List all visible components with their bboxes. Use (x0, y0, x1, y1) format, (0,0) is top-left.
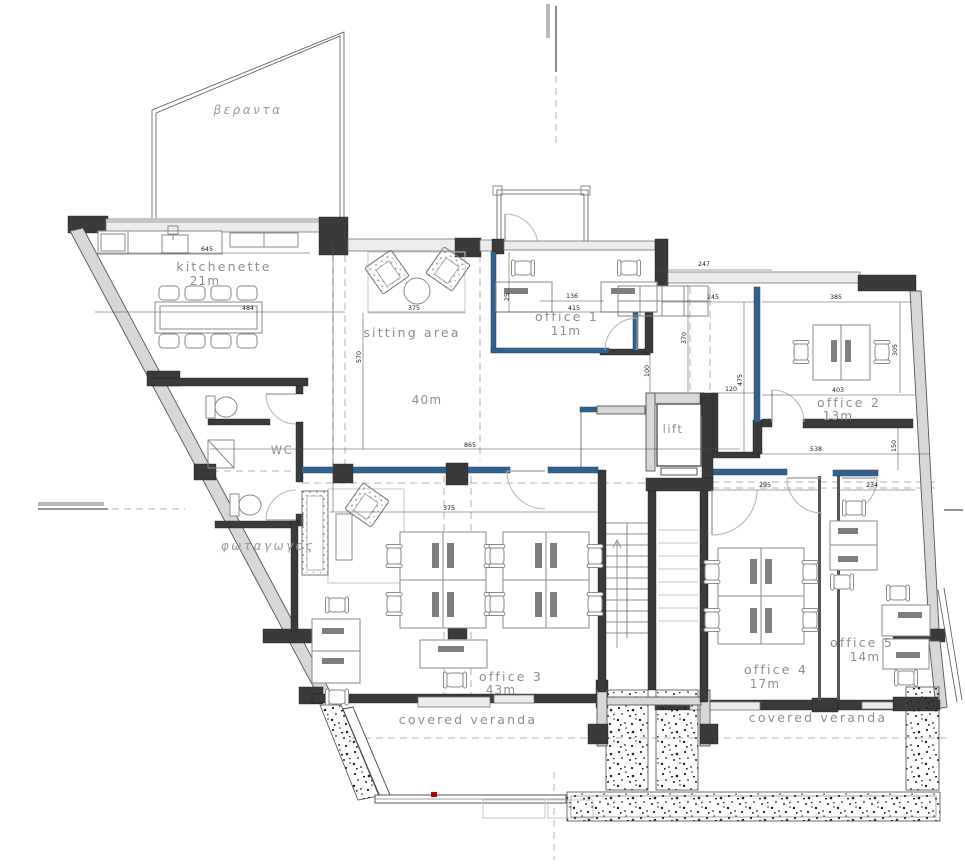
dim-16: 305 (892, 344, 899, 356)
label-covered-veranda-right: covered veranda (749, 710, 887, 725)
label-office-3: office 3 (479, 669, 543, 684)
label-kitchenette: kitchenette (176, 259, 271, 274)
red-marker (431, 792, 437, 797)
office-2-furniture (793, 325, 890, 380)
dim-5: 25 (504, 293, 511, 301)
dim-6: 865 (464, 442, 476, 449)
label-office-3-area: 43m (486, 683, 517, 697)
label-veranda: βεραντα (212, 103, 282, 117)
label-office-4-area: 17m (750, 677, 781, 691)
sitting-area-furniture (365, 247, 471, 313)
dim-2: 375 (408, 305, 420, 312)
label-office-5: office 5 (830, 635, 894, 650)
dim-17: 538 (810, 446, 822, 453)
dim-12: 100 (644, 365, 651, 377)
label-covered-veranda-left: covered veranda (399, 712, 537, 727)
label-main-area: 40m (412, 393, 443, 407)
balcony-outline (493, 186, 590, 247)
dim-21: 234 (866, 482, 878, 489)
label-office-1-area: 11m (551, 324, 582, 338)
label-office-4: office 4 (744, 662, 808, 677)
dim-18: 150 (891, 440, 898, 452)
lift-shaft (646, 393, 713, 491)
label-office-5-area: 14m (850, 650, 881, 664)
dim-7: 570 (356, 351, 363, 363)
dim-4: 136 (566, 293, 578, 300)
section-marks (38, 4, 963, 860)
label-office-2: office 2 (817, 395, 881, 410)
floor-plan-page: 6454843754151362586557024724538537010047… (0, 0, 965, 865)
dim-20: 295 (759, 482, 771, 489)
dim-11: 370 (681, 332, 688, 344)
dim-10: 385 (830, 294, 842, 301)
office-3-furniture (302, 483, 603, 705)
label-wc: WC (271, 443, 293, 457)
dim-9: 245 (707, 294, 719, 301)
label-kitchenette-area: 21m (190, 274, 221, 288)
label-light-well: φωταγωγος (221, 539, 315, 553)
dim-0: 645 (201, 246, 213, 253)
veranda-outline (152, 32, 344, 218)
dim-15: 403 (832, 387, 844, 394)
label-lift: lift (663, 422, 684, 436)
label-office-2-area: 13m (823, 409, 854, 423)
dim-19: 375 (443, 505, 455, 512)
dim-14: 120 (725, 386, 737, 393)
label-office-1: office 1 (535, 309, 599, 324)
floor-plan-drawing: 6454843754151362586557024724538537010047… (0, 0, 965, 865)
dim-8: 247 (698, 261, 710, 268)
office-4-furniture (704, 548, 818, 644)
dim-1: 484 (242, 305, 254, 312)
label-sitting-area: sitting area (363, 325, 460, 340)
dim-13: 475 (737, 374, 744, 386)
